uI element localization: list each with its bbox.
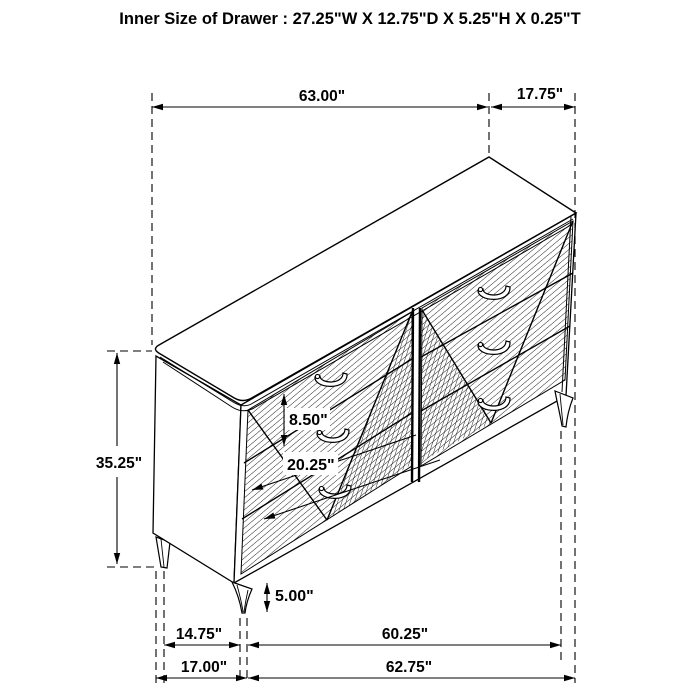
svg-text:8.50": 8.50" (289, 412, 328, 429)
svg-text:17.75": 17.75" (517, 86, 563, 103)
dim-leg-span: 60.25" (248, 626, 561, 645)
dresser-figure (153, 157, 576, 613)
front-right-leg (555, 391, 573, 427)
svg-text:35.25": 35.25" (96, 455, 142, 472)
product-dimension-diagram: Inner Size of Drawer : 27.25"W X 12.75"D… (0, 0, 700, 700)
dresser-dimension-drawing: Inner Size of Drawer : 27.25"W X 12.75"D… (0, 0, 700, 700)
page-title: Inner Size of Drawer : 27.25"W X 12.75"D… (119, 10, 580, 28)
front-left-leg (232, 582, 252, 613)
dim-leg-height: 5.00" (267, 583, 314, 612)
svg-text:5.00": 5.00" (275, 588, 314, 605)
dim-leg-inset: 14.75" (164, 626, 240, 645)
dim-base-inset: 17.00" (156, 659, 247, 678)
svg-text:63.00": 63.00" (299, 88, 345, 105)
svg-text:62.75": 62.75" (386, 659, 432, 676)
svg-text:20.25": 20.25" (287, 457, 335, 474)
svg-text:17.00": 17.00" (181, 659, 227, 676)
svg-text:60.25": 60.25" (382, 626, 428, 643)
dim-height: 35.25" (96, 351, 157, 567)
svg-text:14.75": 14.75" (176, 626, 222, 643)
dim-base-width: 62.75" (248, 659, 575, 678)
